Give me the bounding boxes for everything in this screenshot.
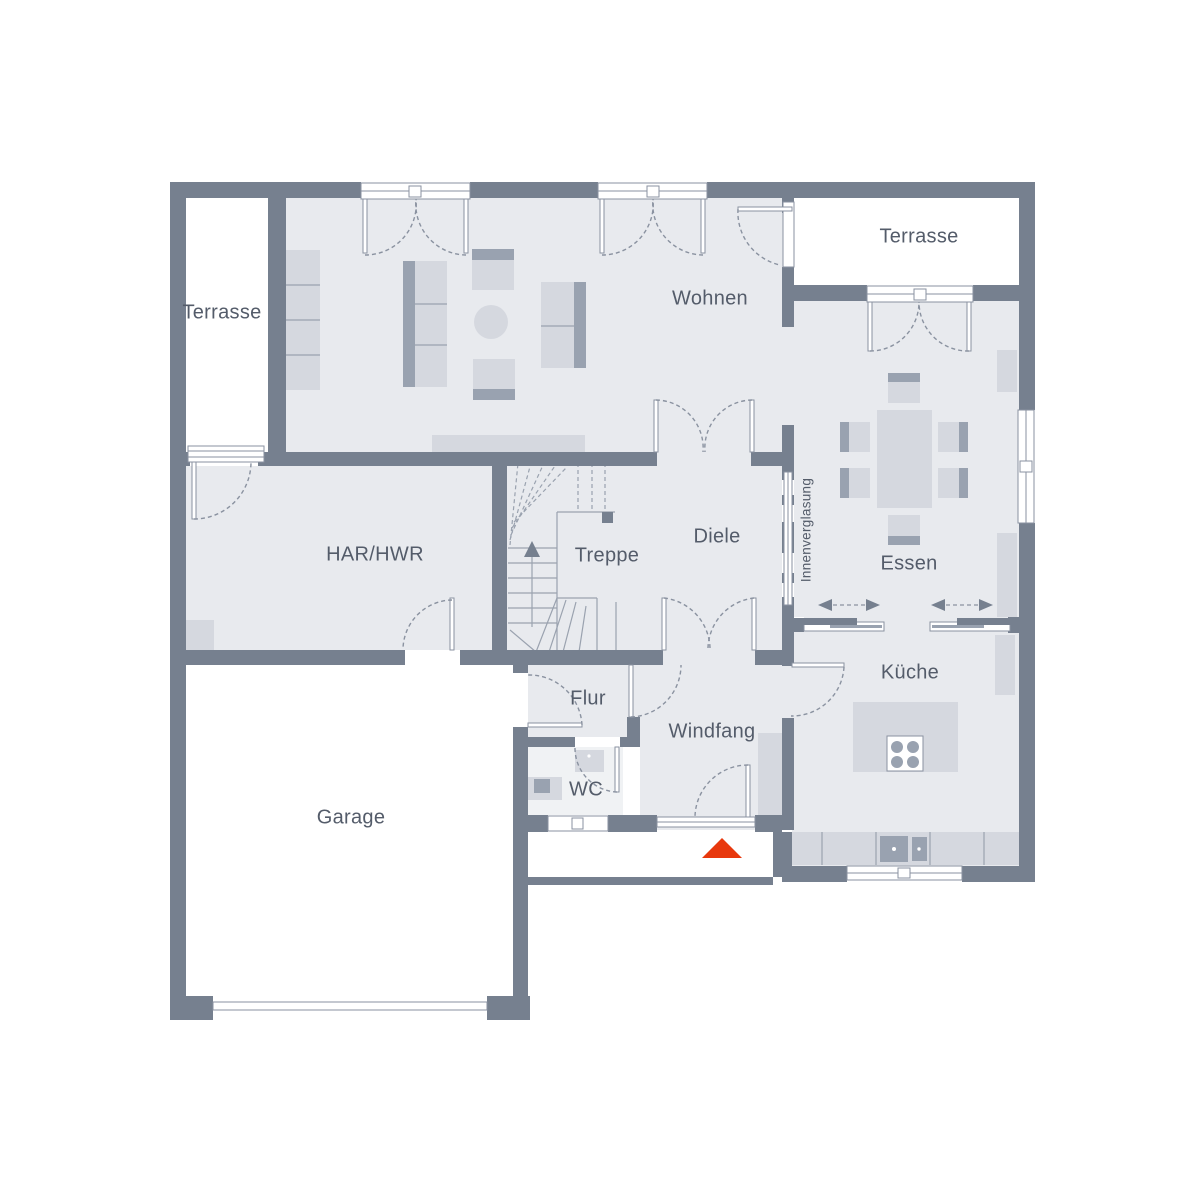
- entrance-door: [746, 765, 750, 817]
- room-label-diele: Diele: [693, 526, 740, 549]
- room-label-essen: Essen: [880, 553, 937, 576]
- door-flur-windfang: [629, 665, 633, 717]
- window-essen-east: [1018, 410, 1034, 523]
- door-windfang-kueche: [792, 663, 844, 667]
- window-kueche-south: [847, 866, 962, 880]
- garage-door: [213, 1002, 487, 1010]
- french-door-wohnen-2: [598, 183, 707, 199]
- room-label-wohnen: Wohnen: [672, 288, 748, 311]
- door-wc: [615, 747, 619, 792]
- coffee-table: [474, 305, 508, 339]
- cabinet-essen-top: [997, 350, 1017, 392]
- wardrobe: [758, 733, 782, 817]
- double-door-diele-windfang: [662, 598, 666, 650]
- innenverglasung-glazing: [784, 472, 792, 605]
- door-frame-wohnen-terrasse: [783, 202, 794, 267]
- room-label-garage: Garage: [317, 807, 386, 830]
- window-wc-south: [548, 816, 608, 831]
- door-wohnen-terrasse: [738, 207, 792, 211]
- dining-table: [877, 410, 932, 508]
- stair-newel-post: [602, 512, 613, 523]
- french-door-wohnen-1: [361, 183, 470, 199]
- room-label-har-hwr: HAR/HWR: [326, 544, 424, 567]
- floor-plan: Terrasse Wohnen Terrasse HAR/HWR Treppe …: [0, 0, 1200, 1200]
- room-label-wc: WC: [569, 779, 603, 802]
- room-label-windfang: Windfang: [669, 721, 756, 744]
- room-label-terrasse-right: Terrasse: [879, 226, 958, 249]
- cabinet-kueche: [995, 635, 1015, 695]
- entrance-threshold: [657, 817, 755, 827]
- room-label-innenverglasung: Innenverglasung: [799, 478, 814, 582]
- room-label-terrasse-left: Terrasse: [182, 302, 261, 325]
- room-label-treppe: Treppe: [575, 545, 639, 568]
- plan-drawing: [0, 0, 1200, 1200]
- terrace-door-har: [188, 446, 264, 462]
- floor-garage: [186, 665, 513, 1002]
- room-label-kueche: Küche: [881, 662, 939, 685]
- cabinet-essen-bottom: [997, 533, 1017, 617]
- door-har-terrasse: [192, 462, 196, 519]
- double-door-wohnen-diele: [654, 400, 658, 452]
- har-fixture: [186, 620, 214, 651]
- french-door-essen-terrasse: [867, 286, 973, 302]
- room-label-flur: Flur: [570, 688, 606, 711]
- door-har-garage: [450, 598, 454, 650]
- floor-wohnen: [286, 198, 782, 452]
- door-garage-flur: [528, 723, 582, 727]
- sideboard: [432, 435, 585, 453]
